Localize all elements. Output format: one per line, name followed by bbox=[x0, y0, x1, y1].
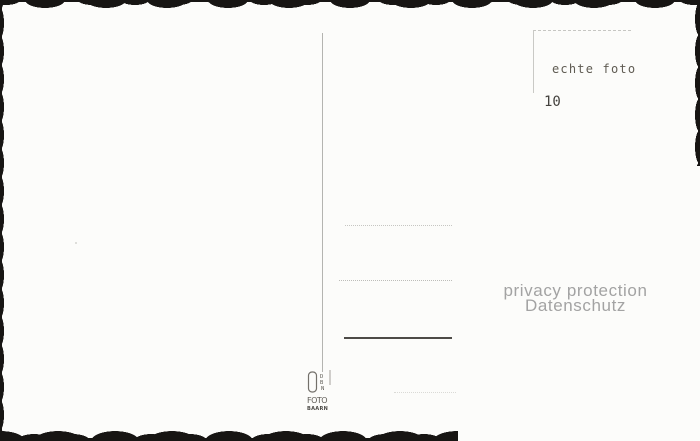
paper-speck bbox=[75, 242, 77, 244]
address-divider-line bbox=[322, 33, 323, 372]
address-line-4 bbox=[394, 392, 456, 393]
privacy-watermark-line2: Datenschutz bbox=[478, 298, 673, 313]
postcard-back-scan: echte foto 10 privacy protection Datensc… bbox=[0, 0, 700, 441]
logo-word-foto: FOTO bbox=[307, 396, 327, 405]
privacy-watermark: privacy protection Datenschutz bbox=[478, 283, 673, 313]
address-line-1 bbox=[345, 225, 452, 226]
logo-letter-3: N bbox=[321, 386, 324, 392]
stamp-box-left-line bbox=[533, 30, 534, 93]
logo-city-baarn: BAARN bbox=[307, 406, 328, 411]
stamp-number: 10 bbox=[544, 94, 561, 110]
real-photo-label: echte foto bbox=[552, 62, 636, 76]
publisher-logo-graphic: D B N FOTO BAARN bbox=[306, 369, 338, 411]
address-line-2 bbox=[339, 280, 452, 281]
logo-flag-shape bbox=[309, 372, 317, 392]
address-line-3 bbox=[344, 337, 452, 339]
deckle-edge-right bbox=[694, 0, 700, 166]
stamp-box-top-line bbox=[533, 30, 631, 31]
publisher-logo: D B N FOTO BAARN bbox=[306, 369, 338, 411]
deckle-edge-bottom bbox=[0, 429, 458, 441]
deckle-edge-left bbox=[0, 4, 5, 434]
deckle-edge-top bbox=[0, 0, 700, 13]
